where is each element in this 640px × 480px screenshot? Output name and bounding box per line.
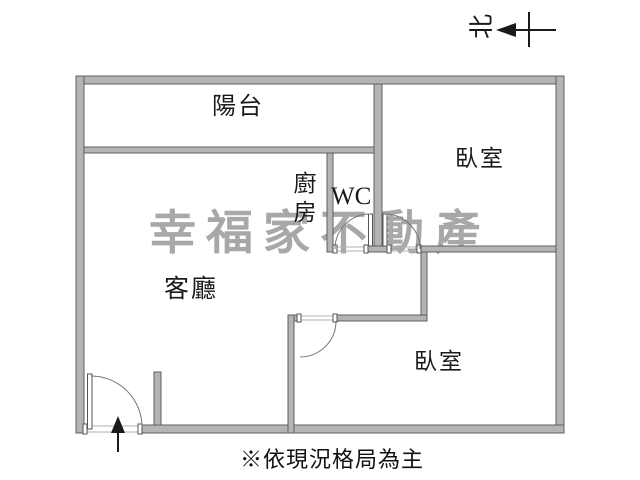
label-bedroom-top: 臥室 (455, 147, 505, 170)
outer-wall-right (556, 76, 564, 433)
hall-wall-mid (368, 246, 387, 252)
bedroom2-top-wall-right (336, 315, 427, 321)
label-balcony: 陽台 (212, 95, 264, 119)
walls (76, 76, 564, 433)
bedroom2-door-arc (300, 321, 336, 357)
wc-bedroom1-wall (374, 84, 382, 249)
thresholds (84, 247, 421, 432)
entrance-arrow-icon (111, 416, 125, 452)
balcony-wall (84, 147, 378, 153)
bedroom1-bottom-wall (421, 246, 556, 252)
door-jambs (83, 245, 421, 434)
label-bedroom-bottom: 臥室 (414, 350, 464, 373)
label-living-room: 客廳 (164, 277, 218, 302)
step-wall (421, 252, 427, 318)
bedroom1-door-leaf (383, 214, 387, 246)
wc-door-leaf (369, 214, 373, 246)
floorplan-drawing (0, 0, 640, 480)
north-arrow-icon (496, 12, 556, 47)
outer-wall-bottom (142, 425, 564, 433)
caption-text: ※依現況格局為主 (240, 449, 424, 471)
outer-wall-left (76, 76, 84, 433)
wc-door-arc (335, 214, 371, 249)
entry-stub-wall (154, 372, 161, 425)
label-wc: WC (331, 184, 371, 209)
bedroom1-door-arc (385, 214, 420, 249)
entrance-door-leaf (88, 374, 93, 429)
entrance-door-arc (91, 376, 142, 427)
north-label: 北 (470, 14, 495, 39)
floorplan-page: 幸福家不動產 (0, 0, 640, 480)
label-kitchen: 廚房 (291, 171, 314, 229)
outer-wall-top (76, 76, 564, 84)
bedroom2-left-wall (288, 315, 294, 433)
